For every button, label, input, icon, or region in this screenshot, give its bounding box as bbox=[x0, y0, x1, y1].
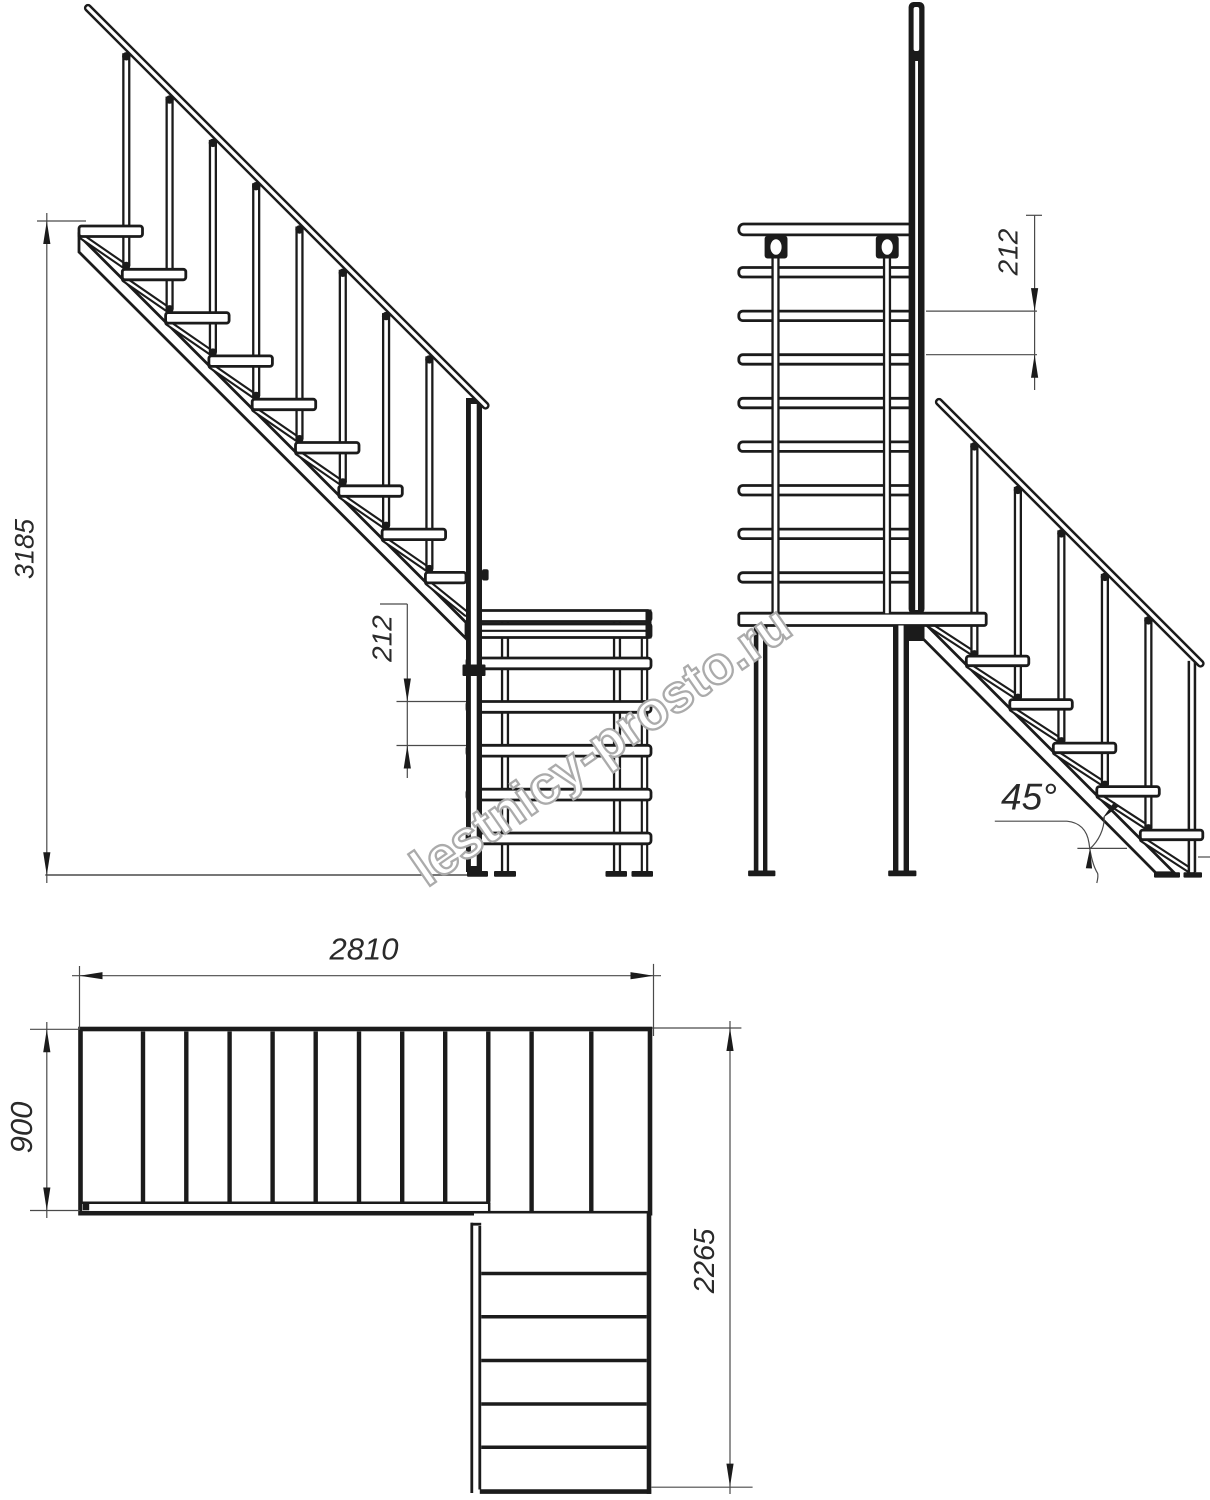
svg-text:45°: 45° bbox=[1001, 776, 1057, 817]
svg-text:2265: 2265 bbox=[689, 1228, 721, 1294]
svg-text:212: 212 bbox=[992, 228, 1023, 276]
svg-text:212: 212 bbox=[366, 615, 397, 663]
svg-text:3185: 3185 bbox=[9, 518, 39, 579]
svg-text:900: 900 bbox=[4, 1102, 39, 1154]
svg-text:2810: 2810 bbox=[329, 931, 399, 966]
